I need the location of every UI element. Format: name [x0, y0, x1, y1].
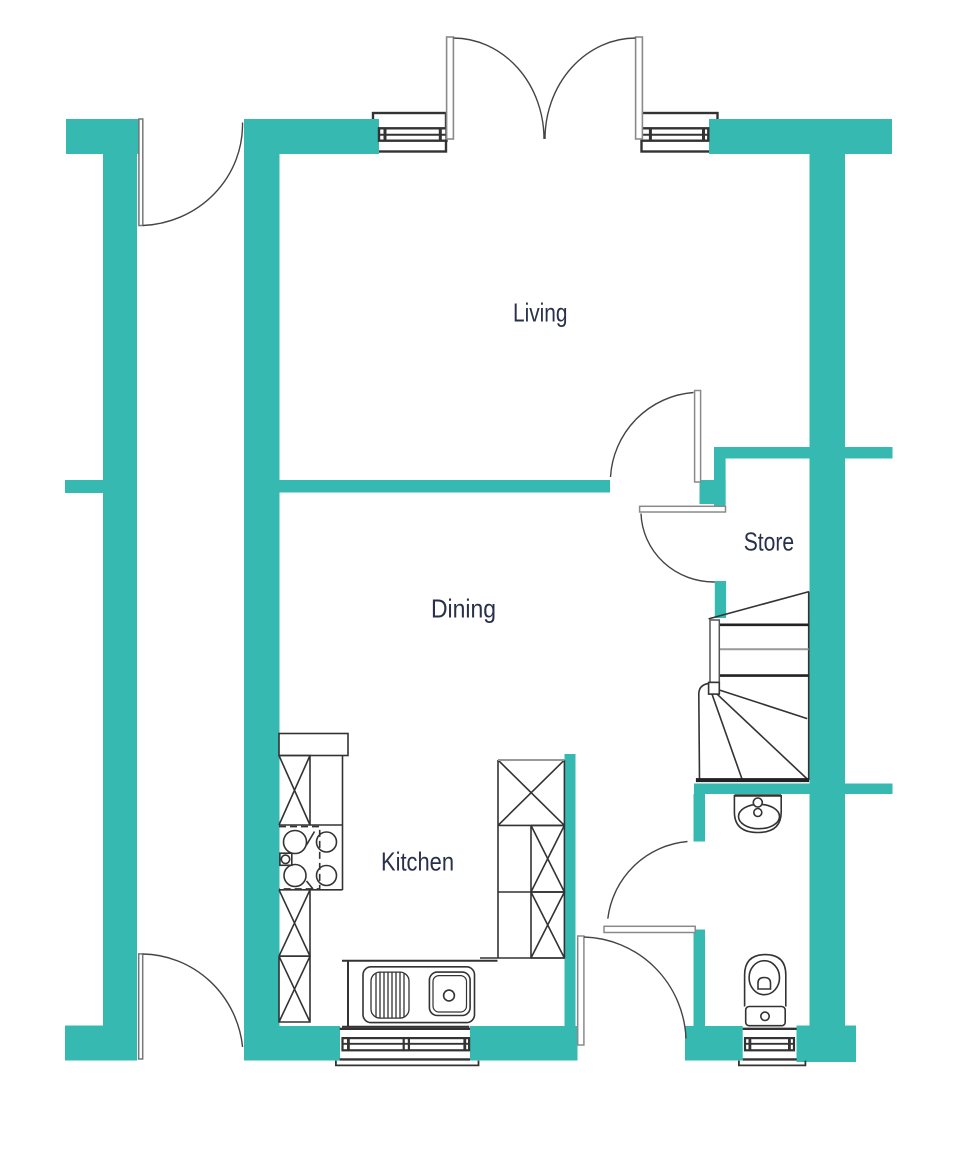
svg-text:Living: Living: [513, 298, 568, 328]
svg-text:Kitchen: Kitchen: [381, 847, 454, 877]
svg-text:Store: Store: [744, 527, 795, 557]
svg-text:Dining: Dining: [431, 594, 496, 624]
